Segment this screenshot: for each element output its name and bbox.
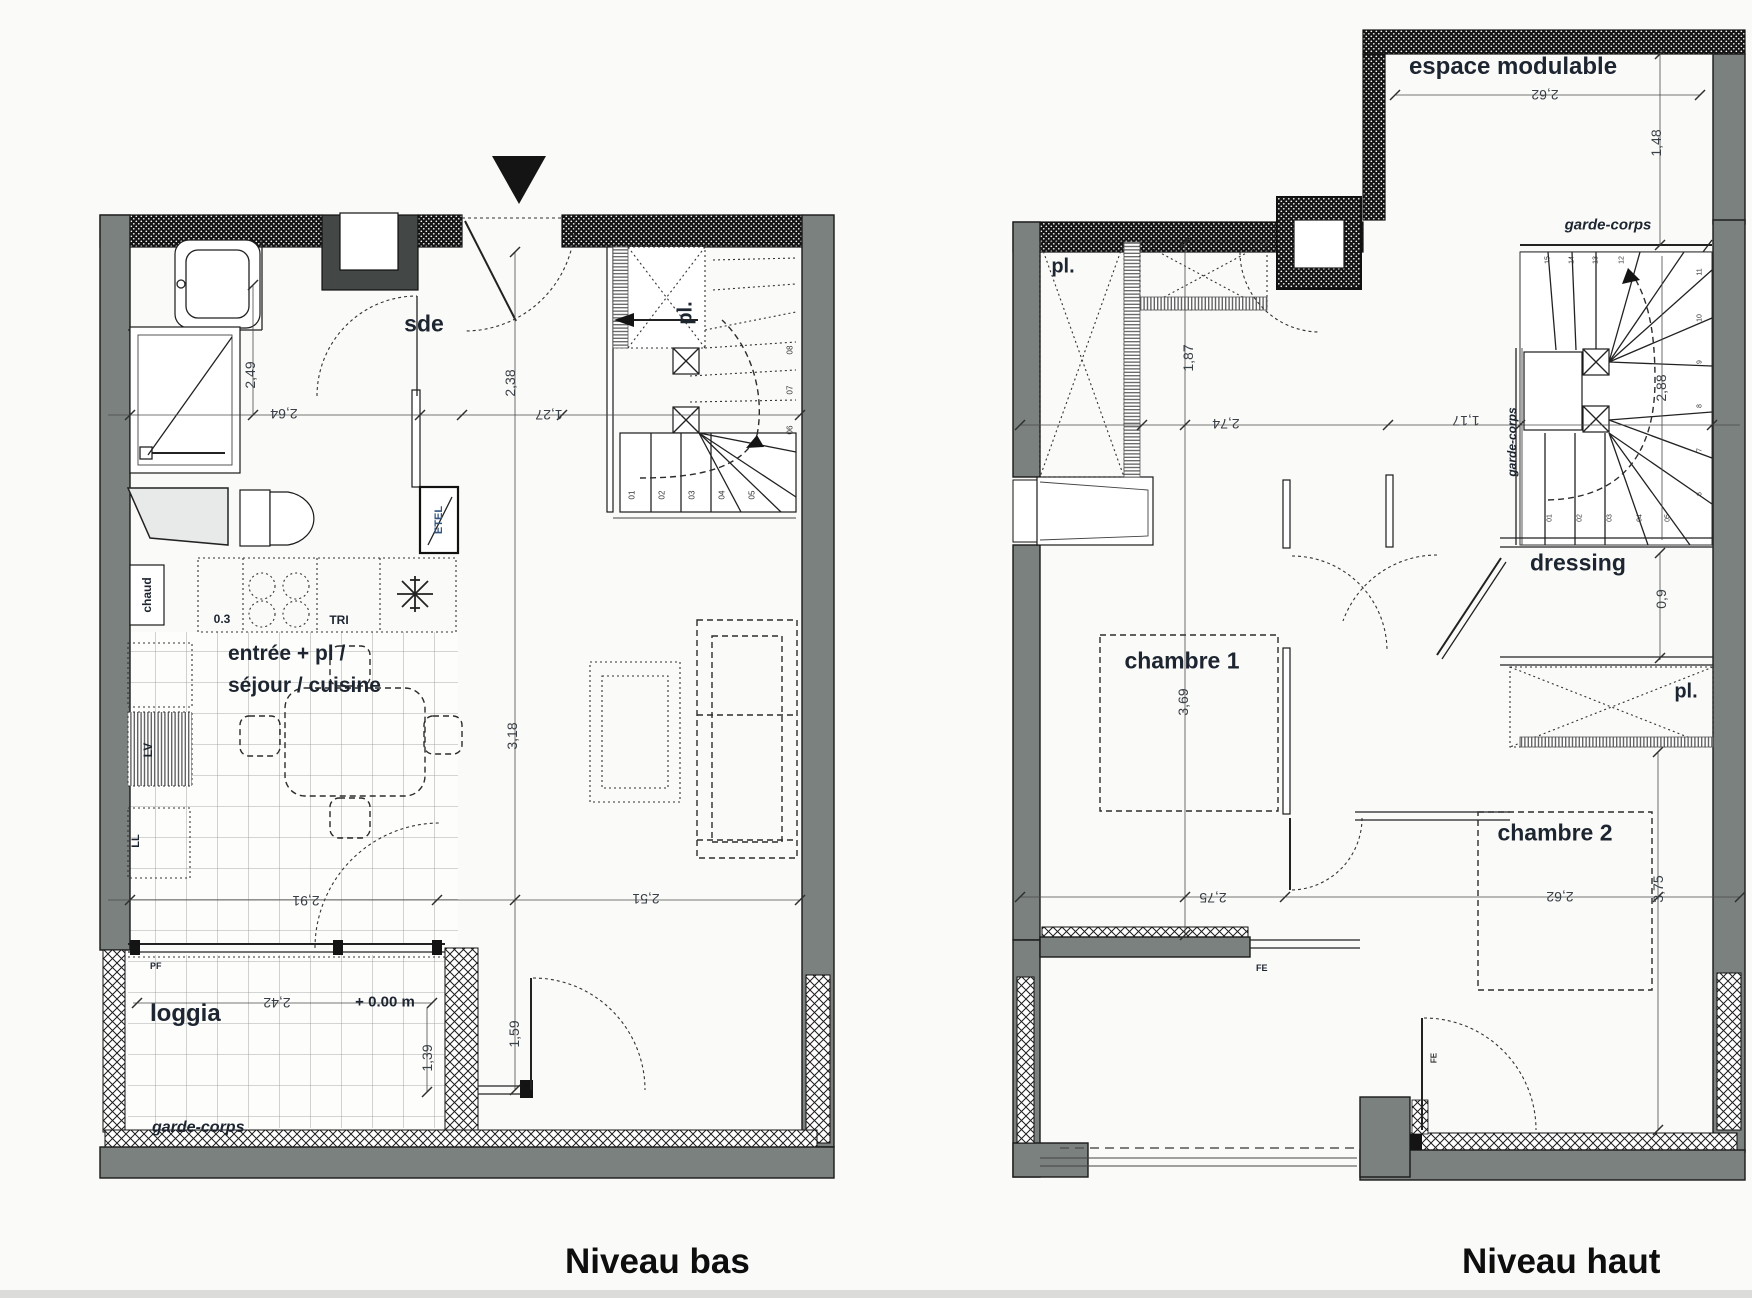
stair-number: 11 [1697, 268, 1704, 275]
washbasin [128, 488, 228, 545]
dishwasher [128, 712, 192, 786]
stair-number: 10 [1697, 314, 1704, 322]
dim-label: 2,64 [270, 406, 297, 422]
room-label-living-2: séjour / cuisine [228, 674, 381, 698]
dim-label: 2,42 [263, 995, 290, 1011]
stair-number: 14 [1569, 256, 1576, 264]
loggia-floor [128, 955, 445, 1128]
room-label-loggia: loggia [150, 1000, 221, 1028]
room-label-dressing: dressing [1530, 550, 1626, 577]
dim-label: 1,87 [1180, 344, 1196, 371]
page-edge [0, 1290, 1752, 1298]
label-etel: ETEL [433, 506, 445, 534]
dim-label: 2,62 [1531, 87, 1558, 103]
stair-number: 04 [718, 491, 727, 500]
stair-number: 6 [1697, 492, 1704, 496]
stair-number: 15 [1545, 256, 1552, 264]
room-label-living-1: entrée + pl / [228, 642, 345, 666]
label-ll: LL [130, 834, 142, 847]
upper-plan [1013, 30, 1745, 1180]
upper-stairs [1516, 240, 1712, 545]
plan-title-lower: Niveau bas [565, 1242, 750, 1282]
lower-stairs [607, 247, 796, 518]
dim-label: 2,75 [1199, 890, 1226, 906]
dim-label: 2,91 [292, 893, 319, 909]
room-label-pl-top: pl. [1051, 256, 1074, 279]
stair-number: 05 [748, 491, 757, 500]
label-fe-2: FE [1430, 1053, 1439, 1063]
label-hob-dim: 0.3 [214, 612, 231, 626]
label-tri: TRI [329, 613, 348, 627]
label-garde-corps-top: garde-corps [1565, 217, 1652, 234]
dim-label: 2,51 [632, 891, 659, 907]
stair-number: 12 [1619, 256, 1626, 264]
floorplan-page: { "colors": { "wall_gray": "#7b817e", "l… [0, 0, 1752, 1298]
room-label-sde: sde [404, 311, 444, 338]
dim-label: 3,75 [1650, 875, 1666, 902]
dressing-area [1343, 538, 1713, 747]
dim-label: 1,59 [506, 1020, 522, 1047]
label-garde-corps-lower: garde-corps [152, 1119, 244, 1137]
stair-number: 9 [1697, 360, 1704, 364]
label-fe-1: FE [1256, 963, 1268, 973]
stair-number: 03 [688, 491, 697, 500]
dim-label: 3,69 [1175, 688, 1191, 715]
entrance-door [462, 218, 575, 331]
upper-partitions [1283, 475, 1510, 890]
label-lv: LV [141, 743, 155, 757]
label-level: + 0.00 m [355, 994, 415, 1011]
dim-label: 0,9 [1653, 589, 1669, 608]
stair-number: 02 [658, 491, 667, 500]
dim-label: 2,49 [242, 361, 258, 388]
stair-number: 04 [1637, 514, 1644, 522]
dim-label: 3,18 [504, 722, 520, 749]
room-label-chambre1: chambre 1 [1124, 648, 1239, 675]
room-label-pl-right: pl. [1674, 681, 1697, 704]
label-garde-corps-side: garde-corps [1505, 407, 1519, 476]
dim-label: 2,74 [1212, 416, 1239, 432]
dim-label: 1,27 [535, 407, 562, 423]
sink [175, 240, 260, 328]
wc [240, 490, 270, 546]
room-label-espace-modulable: espace modulable [1409, 53, 1617, 81]
stair-number: 01 [1547, 514, 1554, 522]
dim-label: 2,88 [1653, 374, 1669, 401]
stair-number: 06 [786, 426, 795, 435]
dim-label: 1,39 [419, 1044, 435, 1071]
coffee-table [590, 662, 680, 802]
room-label-stair-closet: pl. [675, 301, 698, 324]
stair-number: 13 [1593, 256, 1600, 264]
plan-title-upper: Niveau haut [1462, 1242, 1660, 1282]
stair-number: 01 [628, 491, 637, 500]
dim-label: 2,62 [1546, 889, 1573, 905]
stair-number: 05 [1665, 514, 1672, 522]
room-label-chambre2: chambre 2 [1497, 820, 1612, 847]
stair-number: 8 [1697, 404, 1704, 408]
stair-number: 7 [1697, 448, 1704, 452]
dim-label: 2,38 [502, 369, 518, 396]
stair-number: 07 [786, 386, 795, 395]
stair-number: 08 [786, 346, 795, 355]
label-pf: PF [150, 961, 162, 971]
stair-number: 03 [1607, 514, 1614, 522]
entrance-arrow-icon [492, 156, 546, 204]
dim-label: 1,48 [1648, 129, 1664, 156]
upper-balcony-door [1410, 1018, 1536, 1150]
stair-number: 02 [1577, 514, 1584, 522]
label-chaud: chaud [140, 577, 154, 612]
fridge-snowflake-icon [397, 576, 433, 612]
dim-label: 1,17 [1452, 413, 1479, 429]
hob-icon [249, 573, 309, 627]
